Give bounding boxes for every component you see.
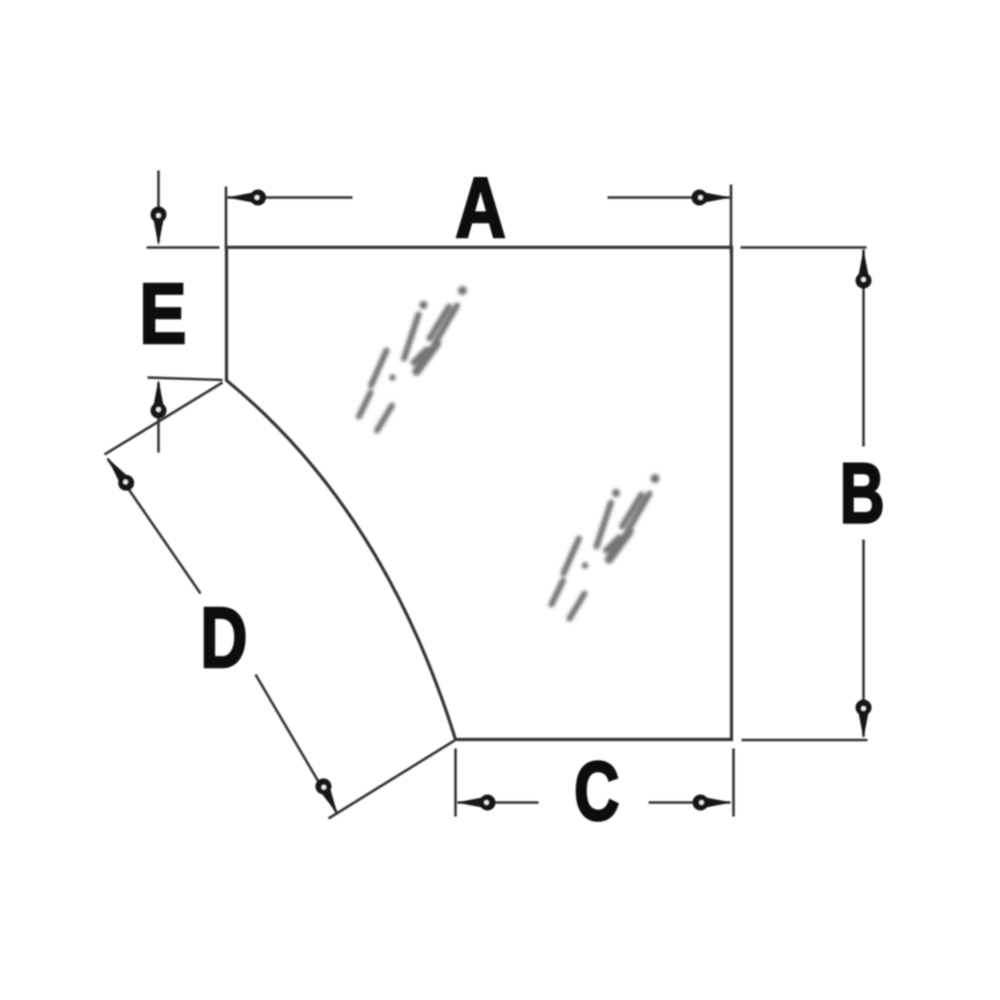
svg-text:C: C xyxy=(574,744,619,838)
svg-text:B: B xyxy=(840,446,885,541)
svg-text:E: E xyxy=(139,266,186,362)
svg-text:A: A xyxy=(455,162,505,256)
svg-text:D: D xyxy=(200,591,247,686)
